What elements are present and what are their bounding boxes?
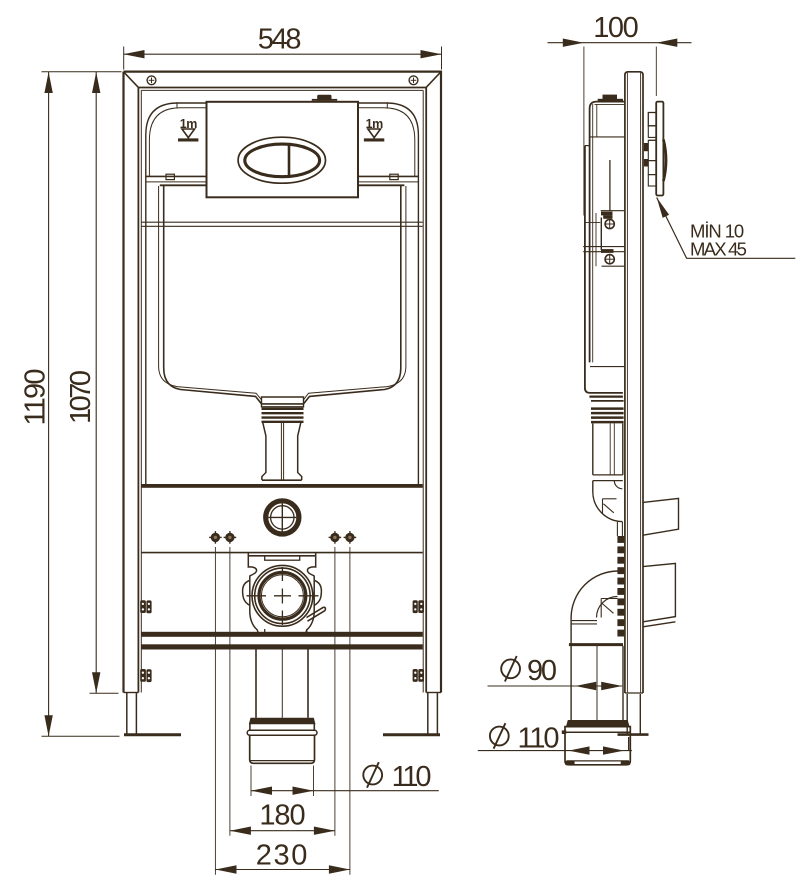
svg-text:MAX 45: MAX 45 bbox=[690, 238, 747, 259]
svg-text:110: 110 bbox=[518, 722, 560, 754]
svg-text:90: 90 bbox=[527, 655, 557, 687]
svg-text:110: 110 bbox=[392, 761, 432, 793]
svg-text:1190: 1190 bbox=[20, 369, 52, 426]
svg-text:100: 100 bbox=[593, 12, 639, 44]
svg-text:180: 180 bbox=[259, 799, 305, 831]
svg-text:230: 230 bbox=[256, 839, 308, 871]
svg-text:1070: 1070 bbox=[65, 370, 97, 424]
svg-text:548: 548 bbox=[258, 24, 302, 56]
